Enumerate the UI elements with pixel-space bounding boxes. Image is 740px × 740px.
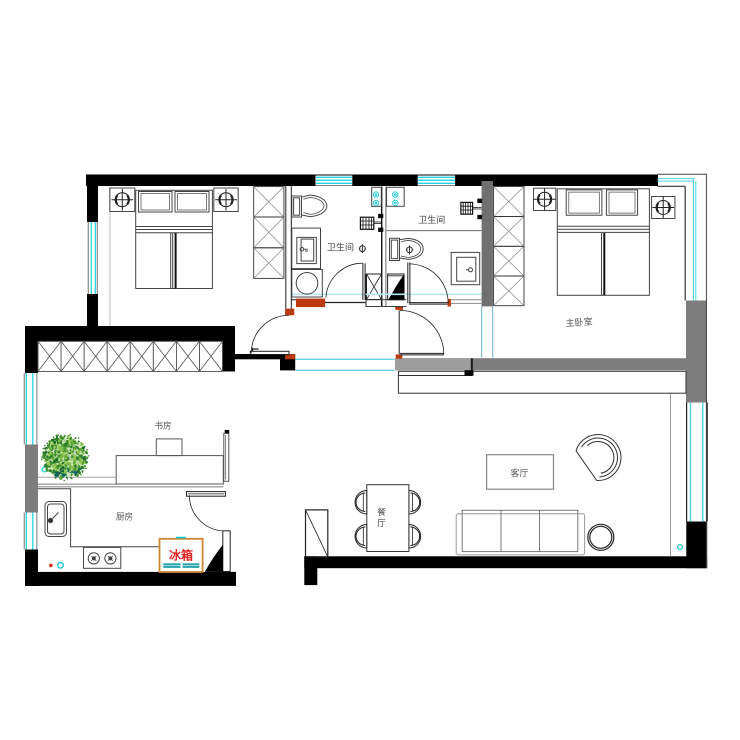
svg-text:厨房: 厨房 bbox=[116, 512, 133, 522]
svg-text:餐: 餐 bbox=[377, 507, 386, 517]
svg-text:客厅: 客厅 bbox=[510, 468, 528, 479]
svg-text:主卧室: 主卧室 bbox=[565, 316, 593, 329]
svg-text:冰箱: 冰箱 bbox=[169, 548, 193, 563]
svg-text:书房: 书房 bbox=[154, 421, 171, 431]
svg-text:卫生间: 卫生间 bbox=[418, 214, 445, 225]
svg-text:卫生间: 卫生间 bbox=[327, 242, 354, 253]
svg-text:厅: 厅 bbox=[377, 518, 386, 528]
